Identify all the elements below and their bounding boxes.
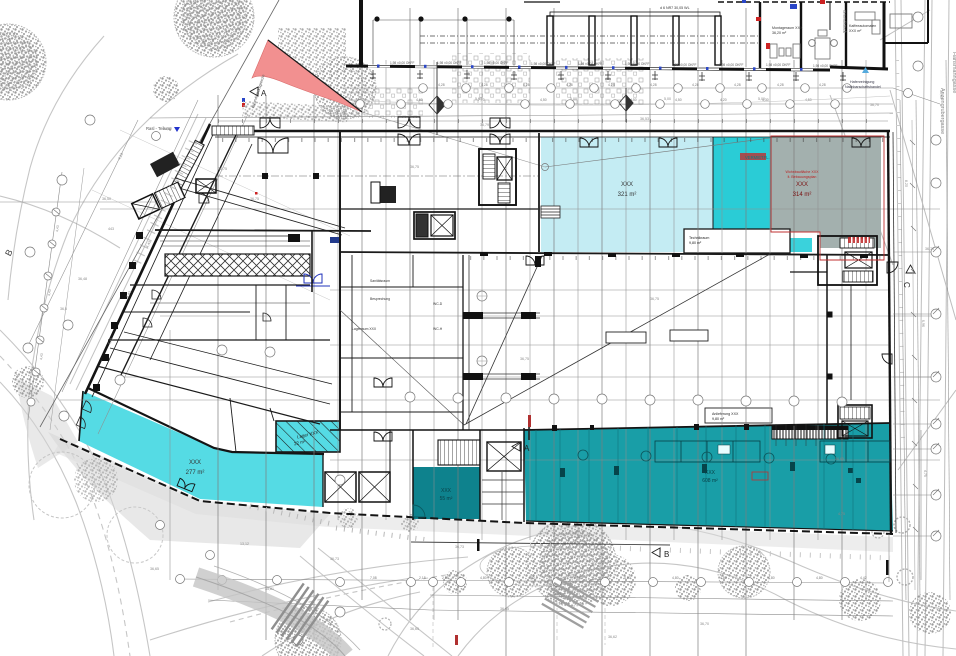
svg-text:36,52: 36,52 [163,127,172,131]
svg-text:4,80: 4,80 [672,576,679,580]
svg-text:A: A [524,444,530,453]
svg-text:4,28: 4,28 [692,83,699,87]
svg-text:36,79: 36,79 [480,123,489,127]
svg-text:36,20 m²: 36,20 m² [772,31,787,35]
svg-text:4,80: 4,80 [576,576,583,580]
svg-text:2,85: 2,85 [442,576,449,580]
svg-text:30,50: 30,50 [939,90,943,99]
svg-text:Anlieferung XXX: Anlieferung XXX [712,412,739,416]
svg-text:36,70: 36,70 [925,247,934,251]
svg-text:36,73: 36,73 [455,545,464,549]
svg-text:36,53: 36,53 [640,117,649,121]
svg-text:XXX: XXX [621,182,633,188]
svg-text:36,66: 36,66 [552,592,561,596]
svg-text:36,65: 36,65 [500,607,509,611]
svg-text:1,98 ±0,00 OKFF: 1,98 ±0,00 OKFF [766,63,790,67]
svg-text:36,5: 36,5 [60,307,67,311]
svg-text:VERMIETFL.: VERMIETFL. [745,155,770,160]
svg-text:4,80: 4,80 [528,576,535,580]
svg-text:36,50: 36,50 [102,197,111,201]
svg-text:4,75: 4,75 [923,470,927,477]
svg-text:1,98 ±0,00 OKFF: 1,98 ±0,00 OKFF [578,62,602,66]
svg-text:XXX m²: XXX m² [849,29,862,33]
svg-text:36,70: 36,70 [870,103,879,107]
svg-text:4,28: 4,28 [523,83,530,87]
svg-text:Hafenreinigung: Hafenreinigung [850,80,874,84]
svg-text:Nachbarschaftshandel: Nachbarschaftshandel [845,85,881,89]
svg-text:321 m²: 321 m² [618,192,637,198]
svg-text:4,50: 4,50 [675,98,682,102]
svg-text:4,28: 4,28 [650,83,657,87]
svg-text:36,75: 36,75 [650,297,659,301]
svg-text:36,70: 36,70 [700,622,709,626]
svg-text:4,42: 4,42 [860,576,867,580]
svg-text:443: 443 [108,227,114,231]
svg-text:lt. Bebauungsplan: lt. Bebauungsplan [788,175,817,179]
svg-text:36,75: 36,75 [250,197,259,201]
svg-text:36,62: 36,62 [608,635,617,639]
svg-text:9,80 m²: 9,80 m² [689,241,702,245]
svg-text:d 6 NR7 30,05 WL: d 6 NR7 30,05 WL [660,6,690,10]
svg-text:Technikraum: Technikraum [689,236,709,240]
svg-text:13,12: 13,12 [240,542,249,546]
svg-text:Grundstück: Grundstück [842,10,847,34]
svg-text:608 m²: 608 m² [702,478,718,484]
svg-text:4,28: 4,28 [438,83,445,87]
svg-text:5,00: 5,00 [570,97,577,101]
svg-text:Hansmanngasse: Hansmanngasse [951,52,956,93]
svg-text:4,28: 4,28 [777,83,784,87]
svg-text:WC-D: WC-D [433,302,443,306]
svg-text:36,48: 36,48 [78,277,87,281]
svg-text:1,98 ±0,00 OKFF: 1,98 ±0,00 OKFF [390,61,414,65]
svg-text:55 m²: 55 m² [440,496,453,502]
svg-text:4,80: 4,80 [480,576,487,580]
svg-text:XXX: XXX [705,470,716,476]
svg-text:C: C [902,282,911,288]
svg-text:4,28: 4,28 [481,83,488,87]
svg-text:1,98 ±0,00 OKFF: 1,98 ±0,00 OKFF [719,63,743,67]
svg-text:4,28: 4,28 [734,83,741,87]
svg-text:4,80: 4,80 [720,576,727,580]
svg-text:XXX: XXX [796,182,808,188]
svg-text:5,00: 5,00 [758,97,765,101]
svg-text:4,28: 4,28 [608,83,615,87]
svg-text:314 m²: 314 m² [793,192,812,198]
svg-text:4,28: 4,28 [566,83,573,87]
svg-text:Kaffeeautomaten: Kaffeeautomaten [849,24,876,28]
svg-text:4,60: 4,60 [416,98,423,102]
svg-text:36,75: 36,75 [520,357,529,361]
svg-text:2,18: 2,18 [419,576,426,580]
svg-text:36,73: 36,73 [330,557,339,561]
svg-text:4,80: 4,80 [816,576,823,580]
svg-text:36,65: 36,65 [150,567,159,571]
svg-text:A: A [261,89,267,98]
svg-text:5,00: 5,00 [664,97,671,101]
svg-text:1,98 ±0,00 OKFF: 1,98 ±0,00 OKFF [625,62,649,66]
svg-text:4,20: 4,20 [720,98,727,102]
svg-text:1,98 ±0,00 OKFF: 1,98 ±0,00 OKFF [531,62,555,66]
svg-text:5,96: 5,96 [921,320,925,327]
svg-text:Besprechung: Besprechung [370,297,390,301]
svg-text:WC-H: WC-H [433,327,443,331]
svg-text:277 m²: 277 m² [186,470,205,476]
svg-text:9,80 m²: 9,80 m² [712,417,725,421]
svg-text:XXX: XXX [441,488,452,494]
svg-text:4,75: 4,75 [838,512,845,516]
svg-text:Montageraum XXX: Montageraum XXX [772,26,803,30]
svg-text:5,00: 5,00 [475,97,482,101]
svg-text:36,65: 36,65 [835,457,844,461]
svg-text:36,75: 36,75 [218,167,227,171]
svg-text:B: B [664,550,669,559]
svg-text:4,50: 4,50 [540,98,547,102]
svg-text:1,98 ±0,00 OKFF: 1,98 ±0,00 OKFF [437,61,461,65]
svg-text:Wohnbaufläche XXX: Wohnbaufläche XXX [785,170,819,174]
svg-text:1,98 ±0,00 OKFF: 1,98 ±0,00 OKFF [484,61,508,65]
svg-text:4,80: 4,80 [624,576,631,580]
svg-text:Sanitätsraum: Sanitätsraum [370,279,390,283]
svg-text:Lagerraum XXX: Lagerraum XXX [352,327,377,331]
svg-text:36,65: 36,65 [410,627,419,631]
svg-text:35,81: 35,81 [265,587,274,591]
svg-text:7,08: 7,08 [370,576,377,580]
svg-text:36,75: 36,75 [410,165,419,169]
svg-text:4,80: 4,80 [768,576,775,580]
svg-text:XXX: XXX [189,460,201,466]
svg-text:1,98 ±0,00 OKFF: 1,98 ±0,00 OKFF [672,63,696,67]
svg-text:8,20: 8,20 [904,180,908,187]
svg-text:4,28: 4,28 [819,83,826,87]
